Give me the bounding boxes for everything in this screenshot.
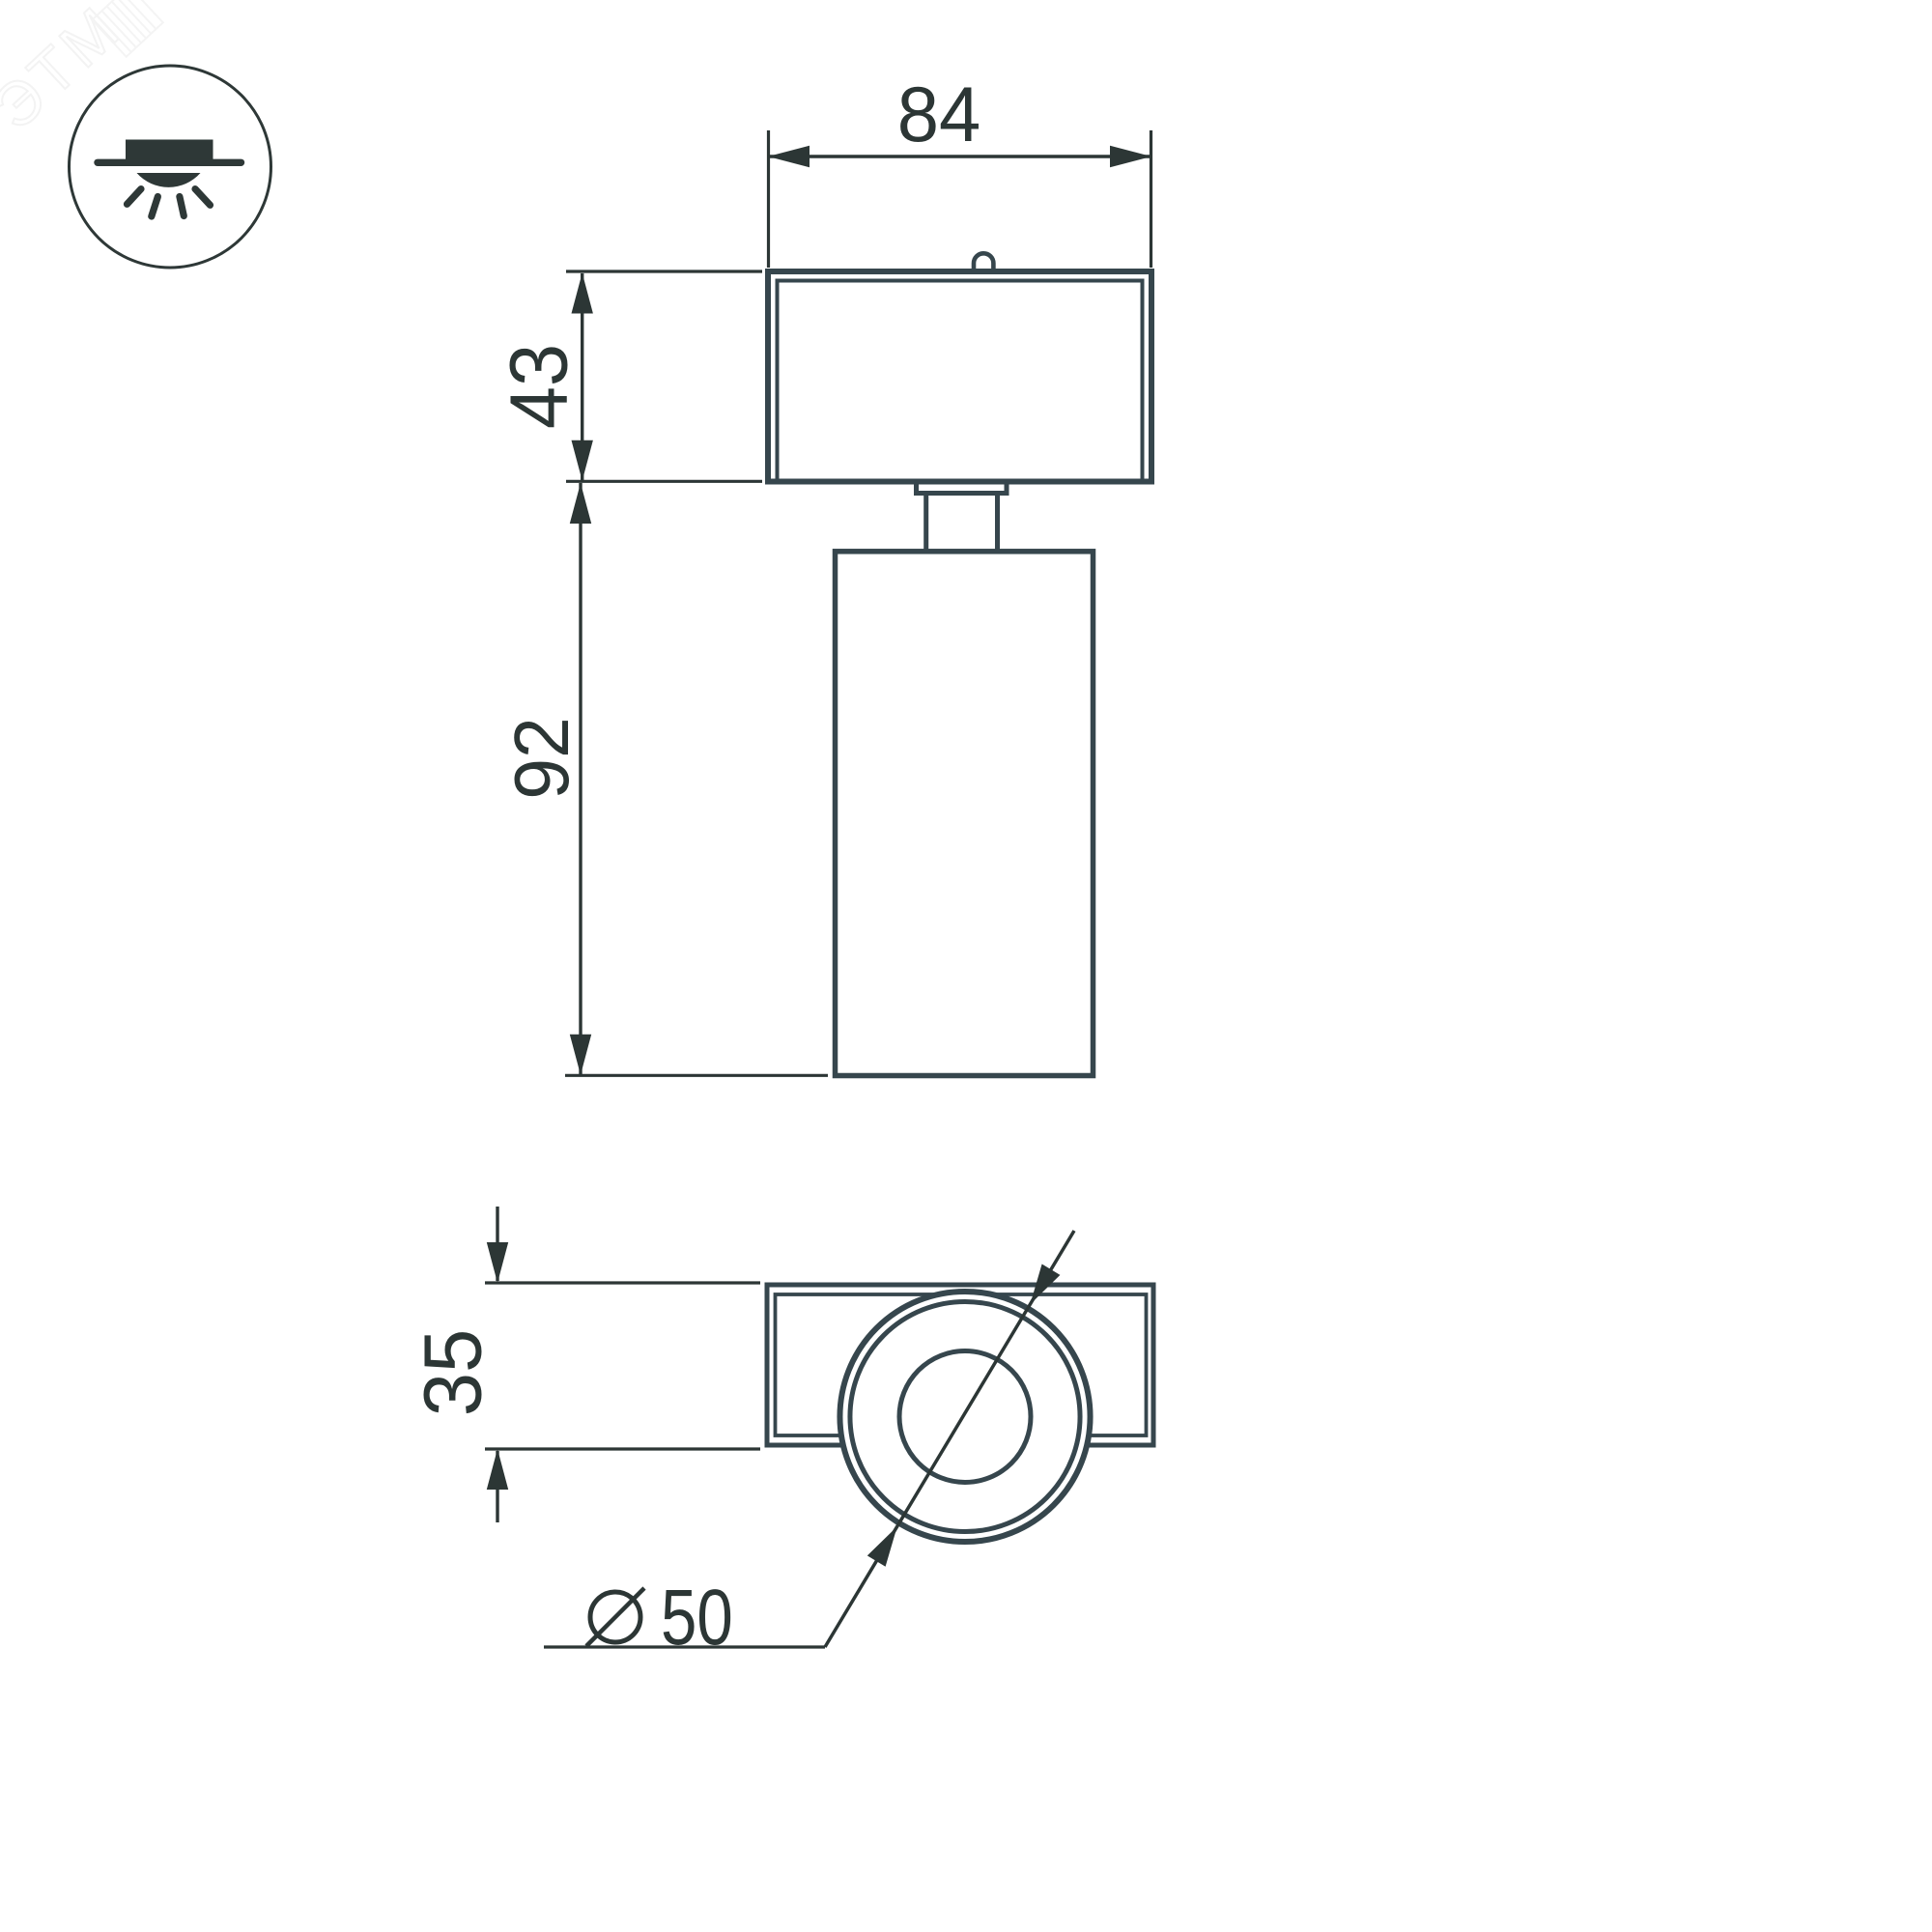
svg-text:43: 43: [494, 344, 584, 429]
svg-text:35: 35: [407, 1329, 497, 1417]
svg-text:84: 84: [897, 71, 980, 158]
svg-text:50: 50: [661, 1573, 733, 1662]
svg-text:92: 92: [498, 717, 585, 799]
